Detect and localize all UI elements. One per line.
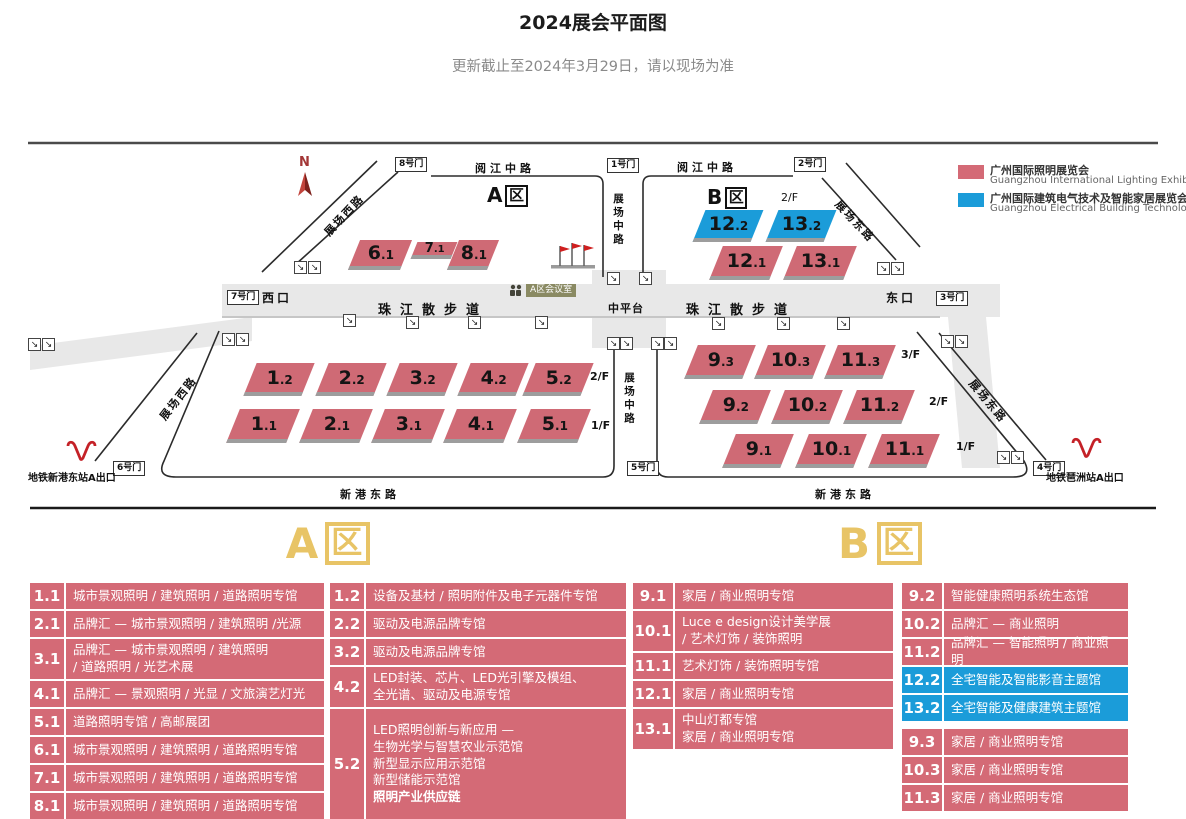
hall-1-2: 1.2	[243, 363, 314, 396]
map-zone-b-label: B区	[707, 185, 747, 209]
hall-desc: LED照明创新与新应用 — 生物光学与智慧农业示范馆 新型显示应用示范馆 新型储…	[366, 709, 530, 819]
escalator-icon: ↘	[777, 317, 790, 330]
hall-9-1: 9.1	[722, 434, 794, 468]
zone-a-char: 区	[505, 185, 527, 207]
hall-desc: Luce e design设计美学展 / 艺术灯饰 / 装饰照明	[675, 611, 838, 651]
road-west-upper: 展场西路	[320, 191, 367, 240]
hall-number: 10.2	[902, 611, 944, 637]
hall-desc: 品牌汇 — 城市景观照明 / 建筑照明 /光源	[66, 611, 308, 637]
escalator-icon: ↘	[406, 316, 419, 329]
hall-desc: 设备及基材 / 照明附件及电子元器件专馆	[366, 583, 605, 609]
escalator-icon: ↘	[343, 314, 356, 327]
floor-label-b-top-2f: 2/F	[781, 191, 798, 204]
road-yuejiang-left: 阅江中路	[475, 160, 535, 176]
road-xingang-left: 新港东路	[340, 486, 400, 502]
road-east-upper: 展场东路	[831, 197, 878, 246]
hall-desc: 家居 / 商业照明专馆	[944, 729, 1070, 755]
hall-row-1-1: 1.1城市景观照明 / 建筑照明 / 道路照明专馆	[30, 583, 324, 609]
hall-desc: 驱动及电源品牌专馆	[366, 639, 493, 665]
hall-number: 11.2	[902, 639, 944, 665]
gate-6: 6号门	[113, 461, 145, 476]
hall-number: 1.2	[330, 583, 366, 609]
escalator-icon: ↘	[712, 317, 725, 330]
hall-number: 8.1	[30, 793, 66, 819]
metro-east-label: 地铁琶洲站A出口	[1046, 469, 1124, 484]
hall-desc: 品牌汇 — 景观照明 / 光显 / 文旅演艺灯光	[66, 681, 312, 707]
hall-row-2-1: 2.1品牌汇 — 城市景观照明 / 建筑照明 /光源	[30, 611, 324, 637]
hall-row-13-2: 13.2全宅智能及健康建筑主题馆	[902, 695, 1128, 721]
legend-lighting-en: Guangzhou International Lighting Exhibit…	[990, 175, 1186, 186]
hall-6-1: 6.1	[348, 240, 412, 270]
hall-desc: 城市景观照明 / 建筑照明 / 道路照明专馆	[66, 737, 304, 763]
hall-row-5-1: 5.1道路照明专馆 / 高邮展团	[30, 709, 324, 735]
hall-number: 6.1	[30, 737, 66, 763]
hall-desc: 品牌汇 — 城市景观照明 / 建筑照明 / 道路照明 / 光艺术展	[66, 639, 275, 679]
hall-desc-bold: 照明产业供应链	[373, 789, 523, 806]
hall-9-2: 9.2	[699, 390, 771, 424]
hall-11-1: 11.1	[868, 434, 940, 468]
hall-1-1: 1.1	[226, 409, 300, 443]
hall-desc: 全宅智能及健康建筑主题馆	[944, 695, 1108, 721]
hall-desc: 家居 / 商业照明专馆	[944, 785, 1070, 811]
hall-row-2-2: 2.2驱动及电源品牌专馆	[330, 611, 626, 637]
hall-number: 13.2	[902, 695, 944, 721]
hall-desc: 品牌汇 — 智能照明 / 商业照明	[944, 639, 1128, 665]
hall-number: 9.2	[902, 583, 944, 609]
hall-desc: 全宅智能及智能影音主题馆	[944, 667, 1108, 693]
road-middle-upper: 展场中路	[611, 193, 626, 247]
gate-3: 3号门	[936, 291, 968, 306]
metro-west-label: 地铁新港东站A出口	[28, 469, 116, 484]
page-title: 2024展会平面图	[0, 8, 1186, 35]
west-exit-label: 西口	[262, 289, 292, 306]
hall-desc: 驱动及电源品牌专馆	[366, 611, 493, 637]
escalator-icon: ↘	[620, 337, 633, 350]
escalator-icon: ↘	[837, 317, 850, 330]
escalator-icon: ↘	[607, 337, 620, 350]
hall-2-1: 2.1	[299, 409, 373, 443]
metro-logo-east-icon	[1073, 439, 1100, 456]
hall-number: 2.2	[330, 611, 366, 637]
hall-12-1: 12.1	[709, 246, 783, 280]
hall-9-3: 9.3	[684, 345, 756, 379]
legend-swatch-lighting	[958, 165, 984, 179]
hall-desc: 品牌汇 — 商业照明	[944, 611, 1066, 637]
escalator-icon: ↘	[42, 338, 55, 351]
hall-desc: 家居 / 商业照明专馆	[944, 757, 1070, 783]
pearl-walkway-label-right: 珠江散步道	[686, 299, 796, 318]
hall-desc: 城市景观照明 / 建筑照明 / 道路照明专馆	[66, 583, 304, 609]
gate-2: 2号门	[794, 157, 826, 172]
hall-desc: 智能健康照明系统生态馆	[944, 583, 1096, 609]
hall-number: 9.3	[902, 729, 944, 755]
escalator-icon: ↘	[955, 335, 968, 348]
hall-desc: 家居 / 商业照明专馆	[675, 681, 801, 707]
hall-12-2: 12.2	[693, 210, 764, 242]
hall-row-13-1: 13.1中山灯都专馆 家居 / 商业照明专馆	[633, 709, 893, 749]
compass-arrow-icon	[298, 172, 312, 196]
hall-11-2: 11.2	[843, 390, 915, 424]
gate-5: 5号门	[627, 461, 659, 476]
hall-row-3-2: 3.2驱动及电源品牌专馆	[330, 639, 626, 665]
zone-a-meeting-room-label: A区会议室	[526, 284, 576, 297]
mid-platform-label: 中平台	[608, 300, 644, 316]
road-yuejiang-right: 阅江中路	[677, 159, 737, 175]
zone-a-table-left: 1.1城市景观照明 / 建筑照明 / 道路照明专馆 2.1品牌汇 — 城市景观照…	[30, 583, 324, 819]
hall-row-6-1: 6.1城市景观照明 / 建筑照明 / 道路照明专馆	[30, 737, 324, 763]
escalator-icon: ↘	[535, 316, 548, 329]
hall-number: 5.1	[30, 709, 66, 735]
hall-2-2: 2.2	[315, 363, 386, 396]
road-middle-lower: 展场中路	[622, 372, 637, 426]
hall-3-1: 3.1	[371, 409, 445, 443]
hall-number: 11.1	[633, 653, 675, 679]
metro-logo-west-icon	[68, 442, 95, 459]
hall-row-10-3: 10.3家居 / 商业照明专馆	[902, 757, 1128, 783]
hall-row-11-1: 11.1艺术灯饰 / 装饰照明专馆	[633, 653, 893, 679]
hall-number: 1.1	[30, 583, 66, 609]
map-zone-a-label: A区	[487, 183, 528, 207]
floor-label-a-1f: 1/F	[591, 419, 610, 432]
hall-5-2: 5.2	[522, 363, 593, 396]
hall-number: 9.1	[633, 583, 675, 609]
escalator-icon: ↘	[236, 333, 249, 346]
floor-label-a-2f: 2/F	[590, 370, 609, 383]
hall-row-8-1: 8.1城市景观照明 / 建筑照明 / 道路照明专馆	[30, 793, 324, 819]
hall-number: 7.1	[30, 765, 66, 791]
hall-desc: 艺术灯饰 / 装饰照明专馆	[675, 653, 826, 679]
escalator-icon: ↘	[941, 335, 954, 348]
hall-row-11-2: 11.2品牌汇 — 智能照明 / 商业照明	[902, 639, 1128, 665]
road-east-lower: 展场东路	[965, 376, 1011, 426]
hall-4-2: 4.2	[457, 363, 528, 396]
zone-b-table-left: 9.1家居 / 商业照明专馆 10.1Luce e design设计美学展 / …	[633, 583, 893, 751]
compass-north-label: N	[299, 155, 310, 170]
hall-10-2: 10.2	[771, 390, 843, 424]
hall-11-3: 11.3	[824, 345, 896, 379]
hall-number: 10.3	[902, 757, 944, 783]
floor-plan-page: 2024展会平面图 更新截止至2024年3月29日，请以现场为准	[0, 0, 1186, 819]
section-a-title: A区	[30, 522, 626, 565]
gate-8: 8号门	[395, 157, 427, 172]
hall-row-9-1: 9.1家居 / 商业照明专馆	[633, 583, 893, 609]
hall-number: 2.1	[30, 611, 66, 637]
page-subtitle: 更新截止至2024年3月29日，请以现场为准	[0, 55, 1186, 76]
legend-swatch-building	[958, 193, 984, 207]
section-b-title: B区	[633, 522, 1127, 565]
gate-1: 1号门	[607, 158, 639, 173]
hall-number: 10.1	[633, 611, 675, 651]
hall-4-1: 4.1	[443, 409, 517, 443]
hall-row-7-1: 7.1城市景观照明 / 建筑照明 / 道路照明专馆	[30, 765, 324, 791]
hall-row-3-1: 3.1品牌汇 — 城市景观照明 / 建筑照明 / 道路照明 / 光艺术展	[30, 639, 324, 679]
escalator-icon: ↘	[639, 272, 652, 285]
hall-10-3: 10.3	[754, 345, 826, 379]
east-exit-label: 东口	[886, 289, 916, 306]
hall-row-12-1: 12.1家居 / 商业照明专馆	[633, 681, 893, 707]
hall-7-1: 7.1	[411, 242, 458, 259]
hall-13-1: 13.1	[783, 246, 857, 280]
zone-b-letter: B	[707, 185, 722, 209]
hall-row-4-2: 4.2LED封装、芯片、LED光引擎及模组、 全光谱、驱动及电源专馆	[330, 667, 626, 707]
hall-desc: 中山灯都专馆 家居 / 商业照明专馆	[675, 709, 801, 749]
hall-desc: 道路照明专馆 / 高邮展团	[66, 709, 217, 735]
escalator-icon: ↘	[664, 337, 677, 350]
hall-5-1: 5.1	[517, 409, 591, 443]
escalator-icon: ↘	[651, 337, 664, 350]
hall-number: 11.3	[902, 785, 944, 811]
escalator-icon: ↘	[1011, 451, 1024, 464]
zone-a-letter: A	[487, 183, 502, 207]
escalator-icon: ↘	[294, 261, 307, 274]
hall-number: 12.1	[633, 681, 675, 707]
meeting-people-icon	[510, 285, 521, 296]
hall-row-9-2: 9.2智能健康照明系统生态馆	[902, 583, 1128, 609]
hall-row-5-2: 5.2LED照明创新与新应用 — 生物光学与智慧农业示范馆 新型显示应用示范馆 …	[330, 709, 626, 819]
hall-desc: 城市景观照明 / 建筑照明 / 道路照明专馆	[66, 793, 304, 819]
escalator-icon: ↘	[28, 338, 41, 351]
hall-number: 12.2	[902, 667, 944, 693]
hall-number: 5.2	[330, 709, 366, 819]
hall-row-10-1: 10.1Luce e design设计美学展 / 艺术灯饰 / 装饰照明	[633, 611, 893, 651]
zone-a-table-right: 1.2设备及基材 / 照明附件及电子元器件专馆 2.2驱动及电源品牌专馆 3.2…	[330, 583, 626, 819]
legend-building-en: Guangzhou Electrical Building Technology	[990, 203, 1186, 214]
zone-a-lower-outline	[162, 331, 614, 477]
hall-row-1-2: 1.2设备及基材 / 照明附件及电子元器件专馆	[330, 583, 626, 609]
road-xingang-right: 新港东路	[815, 486, 875, 502]
hall-desc: 家居 / 商业照明专馆	[675, 583, 801, 609]
hall-number: 3.1	[30, 639, 66, 679]
hall-10-1: 10.1	[795, 434, 867, 468]
hall-number: 13.1	[633, 709, 675, 749]
floor-label-b-1f: 1/F	[956, 440, 975, 453]
hall-13-2: 13.2	[766, 210, 837, 242]
hall-desc: LED封装、芯片、LED光引擎及模组、 全光谱、驱动及电源专馆	[366, 667, 591, 707]
zone-b-table-right: 9.2智能健康照明系统生态馆 10.2品牌汇 — 商业照明 11.2品牌汇 — …	[902, 583, 1128, 813]
road-west-lower: 展场西路	[156, 373, 201, 424]
hall-desc: 城市景观照明 / 建筑照明 / 道路照明专馆	[66, 765, 304, 791]
hall-row-10-2: 10.2品牌汇 — 商业照明	[902, 611, 1128, 637]
hall-row-11-3: 11.3家居 / 商业照明专馆	[902, 785, 1128, 811]
flags-icon	[551, 243, 595, 269]
hall-number: 4.2	[330, 667, 366, 707]
escalator-icon: ↘	[877, 262, 890, 275]
floor-label-b-3f: 3/F	[901, 348, 920, 361]
floor-label-b-2f: 2/F	[929, 395, 948, 408]
hall-number: 3.2	[330, 639, 366, 665]
hall-number: 4.1	[30, 681, 66, 707]
hall-row-12-2: 12.2全宅智能及智能影音主题馆	[902, 667, 1128, 693]
escalator-icon: ↘	[308, 261, 321, 274]
escalator-icon: ↘	[468, 316, 481, 329]
gate-7: 7号门	[227, 290, 259, 305]
escalator-icon: ↘	[997, 451, 1010, 464]
hall-row-9-3: 9.3家居 / 商业照明专馆	[902, 729, 1128, 755]
escalator-icon: ↘	[607, 272, 620, 285]
zone-b-char: 区	[725, 187, 747, 209]
hall-row-4-1: 4.1品牌汇 — 景观照明 / 光显 / 文旅演艺灯光	[30, 681, 324, 707]
escalator-icon: ↘	[222, 333, 235, 346]
escalator-icon: ↘	[891, 262, 904, 275]
hall-3-2: 3.2	[386, 363, 457, 396]
